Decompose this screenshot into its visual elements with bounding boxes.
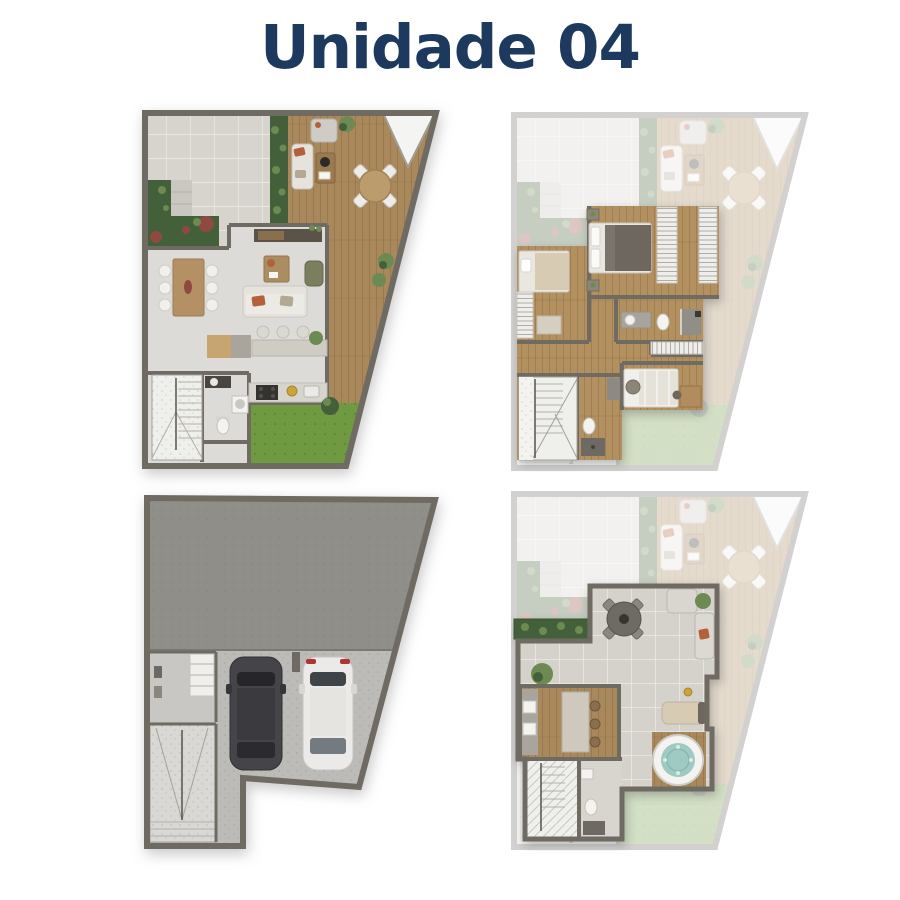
rooftop-bathroom: [579, 759, 622, 839]
floorplan-ground-floor: [142, 110, 442, 470]
utility-room: [150, 652, 216, 722]
page-title: Unidade 04: [0, 16, 900, 80]
garage-stairs: [150, 724, 216, 842]
floorplan-rooftop: [511, 491, 811, 851]
car-white: [299, 657, 357, 770]
roof-slab: [147, 498, 435, 650]
floorplan-garage: [142, 490, 442, 850]
terrace-table: [602, 598, 644, 640]
toilet: [583, 418, 595, 434]
rooftop-stairs: [525, 759, 579, 839]
toilet: [585, 799, 597, 815]
shower: [583, 821, 605, 835]
hot-tub: [652, 732, 706, 788]
canvas: Unidade 04: [0, 0, 900, 900]
car-dark: [226, 657, 286, 770]
toilet: [657, 314, 669, 330]
floorplan-upper-floor: [511, 112, 811, 472]
upper-stairs: [519, 377, 577, 460]
terrace-tree-core: [533, 672, 543, 682]
gourmet-room: [520, 686, 619, 759]
hedge: [514, 619, 590, 639]
wall-stub: [292, 652, 300, 672]
